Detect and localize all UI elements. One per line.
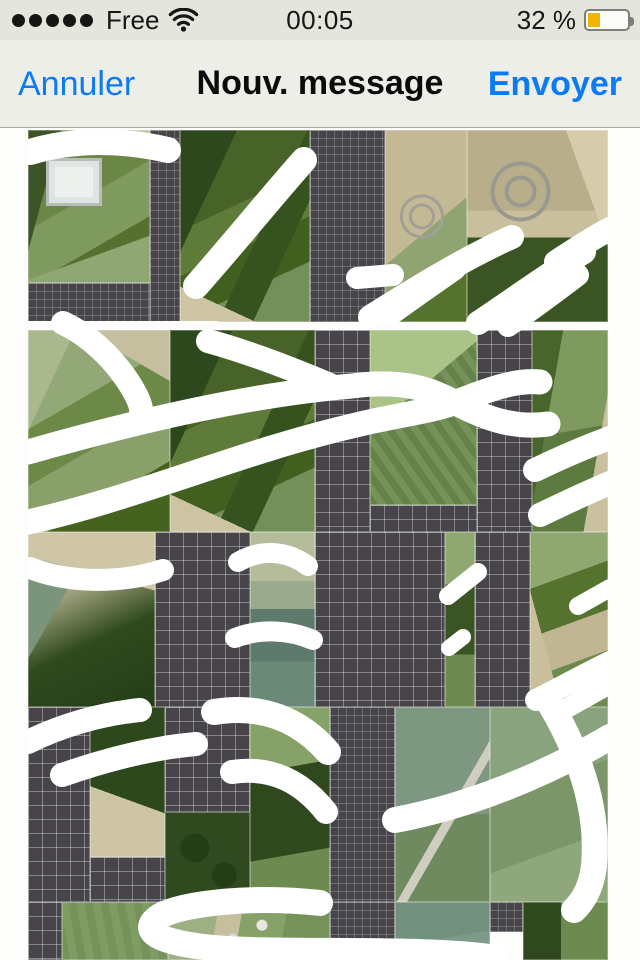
battery-percent: 32 % <box>517 5 576 36</box>
marker-stroke <box>540 483 608 515</box>
battery-nub <box>630 17 634 26</box>
message-body[interactable] <box>0 129 640 960</box>
marker-stroke <box>357 275 393 278</box>
battery-fill <box>588 13 600 27</box>
marker-stroke <box>235 631 313 640</box>
marker-stroke <box>535 438 608 470</box>
marker-stroke <box>214 710 328 752</box>
cancel-button[interactable]: Annuler <box>0 40 153 128</box>
attached-image[interactable] <box>28 130 608 960</box>
marker-stroke <box>62 744 196 775</box>
marker-stroke <box>449 637 463 648</box>
iphone-screen: Free 00:05 32 % Annuler Nouv. message En… <box>0 0 640 960</box>
status-bar: Free 00:05 32 % <box>0 0 640 40</box>
marker-stroke <box>238 553 308 566</box>
marker-stroke <box>448 572 478 596</box>
marker-stroke <box>28 710 140 742</box>
marker-stroke <box>196 160 304 286</box>
marker-stroke <box>549 702 595 910</box>
nav-bar: Annuler Nouv. message Envoyer <box>0 40 640 128</box>
marker-strokes-overlay <box>28 130 608 960</box>
marker-stroke <box>151 900 497 958</box>
marker-stroke <box>63 323 141 410</box>
status-right: 32 % <box>517 0 630 40</box>
battery-icon <box>584 9 630 31</box>
marker-stroke <box>578 588 608 606</box>
send-button[interactable]: Envoyer <box>470 40 640 128</box>
marker-stroke <box>30 568 163 580</box>
marker-stroke <box>556 229 608 262</box>
marker-stroke <box>30 142 168 152</box>
marker-stroke <box>232 771 326 812</box>
